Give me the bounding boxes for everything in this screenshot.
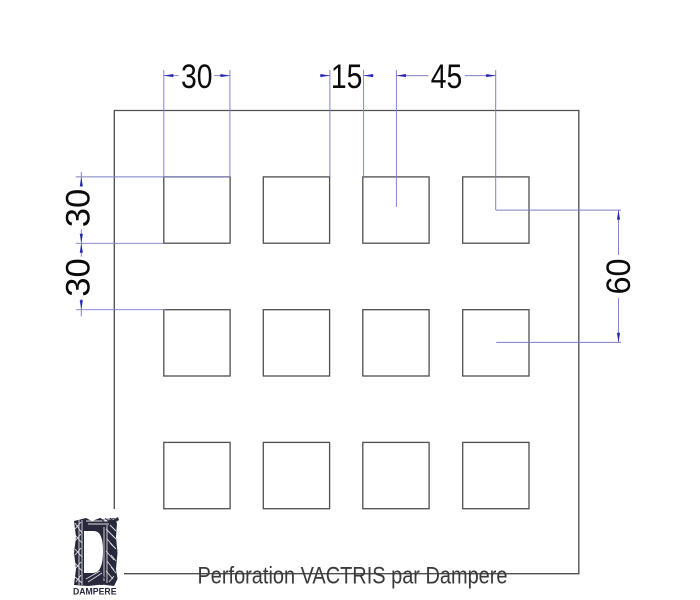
svg-text:DAMPERE: DAMPERE xyxy=(73,587,117,598)
svg-text:Perforation VACTRIS par Damper: Perforation VACTRIS par Dampere xyxy=(198,563,508,590)
svg-text:30: 30 xyxy=(59,258,97,297)
svg-text:30: 30 xyxy=(59,189,97,228)
svg-text:45: 45 xyxy=(431,58,463,96)
svg-text:30: 30 xyxy=(181,58,213,96)
svg-text:60: 60 xyxy=(600,259,638,295)
svg-text:15: 15 xyxy=(331,58,363,96)
